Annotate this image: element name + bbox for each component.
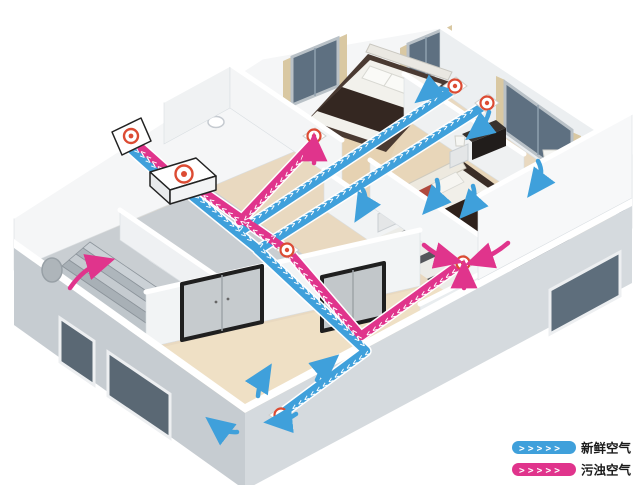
legend-chevrons: >>>>> xyxy=(519,444,563,455)
polluted-air-legend-label: 污浊空气 xyxy=(581,463,632,478)
legend-chevrons: >>>>> xyxy=(519,466,563,477)
ventilation-diagram: { "legend": { "items": [ { "id": "fresh-… xyxy=(0,0,640,485)
lamp xyxy=(455,136,465,146)
legend-item-polluted-air: >>>>> 污浊空气 xyxy=(512,463,632,478)
floorplan-illustration: >>>>>> >>>>>>>>>> >>>>>>>>>>>>>>>>>>>>>>… xyxy=(0,0,640,485)
legend: >>>>> 新鲜空气 >>>>> 污浊空气 xyxy=(512,441,632,478)
air-vent-hub xyxy=(129,134,134,139)
unit-fan-hub xyxy=(181,171,187,177)
fresh-air-legend-label: 新鲜空气 xyxy=(581,441,632,456)
legend-item-fresh-air: >>>>> 新鲜空气 xyxy=(512,441,632,456)
exterior-pipe-cap xyxy=(42,258,62,282)
